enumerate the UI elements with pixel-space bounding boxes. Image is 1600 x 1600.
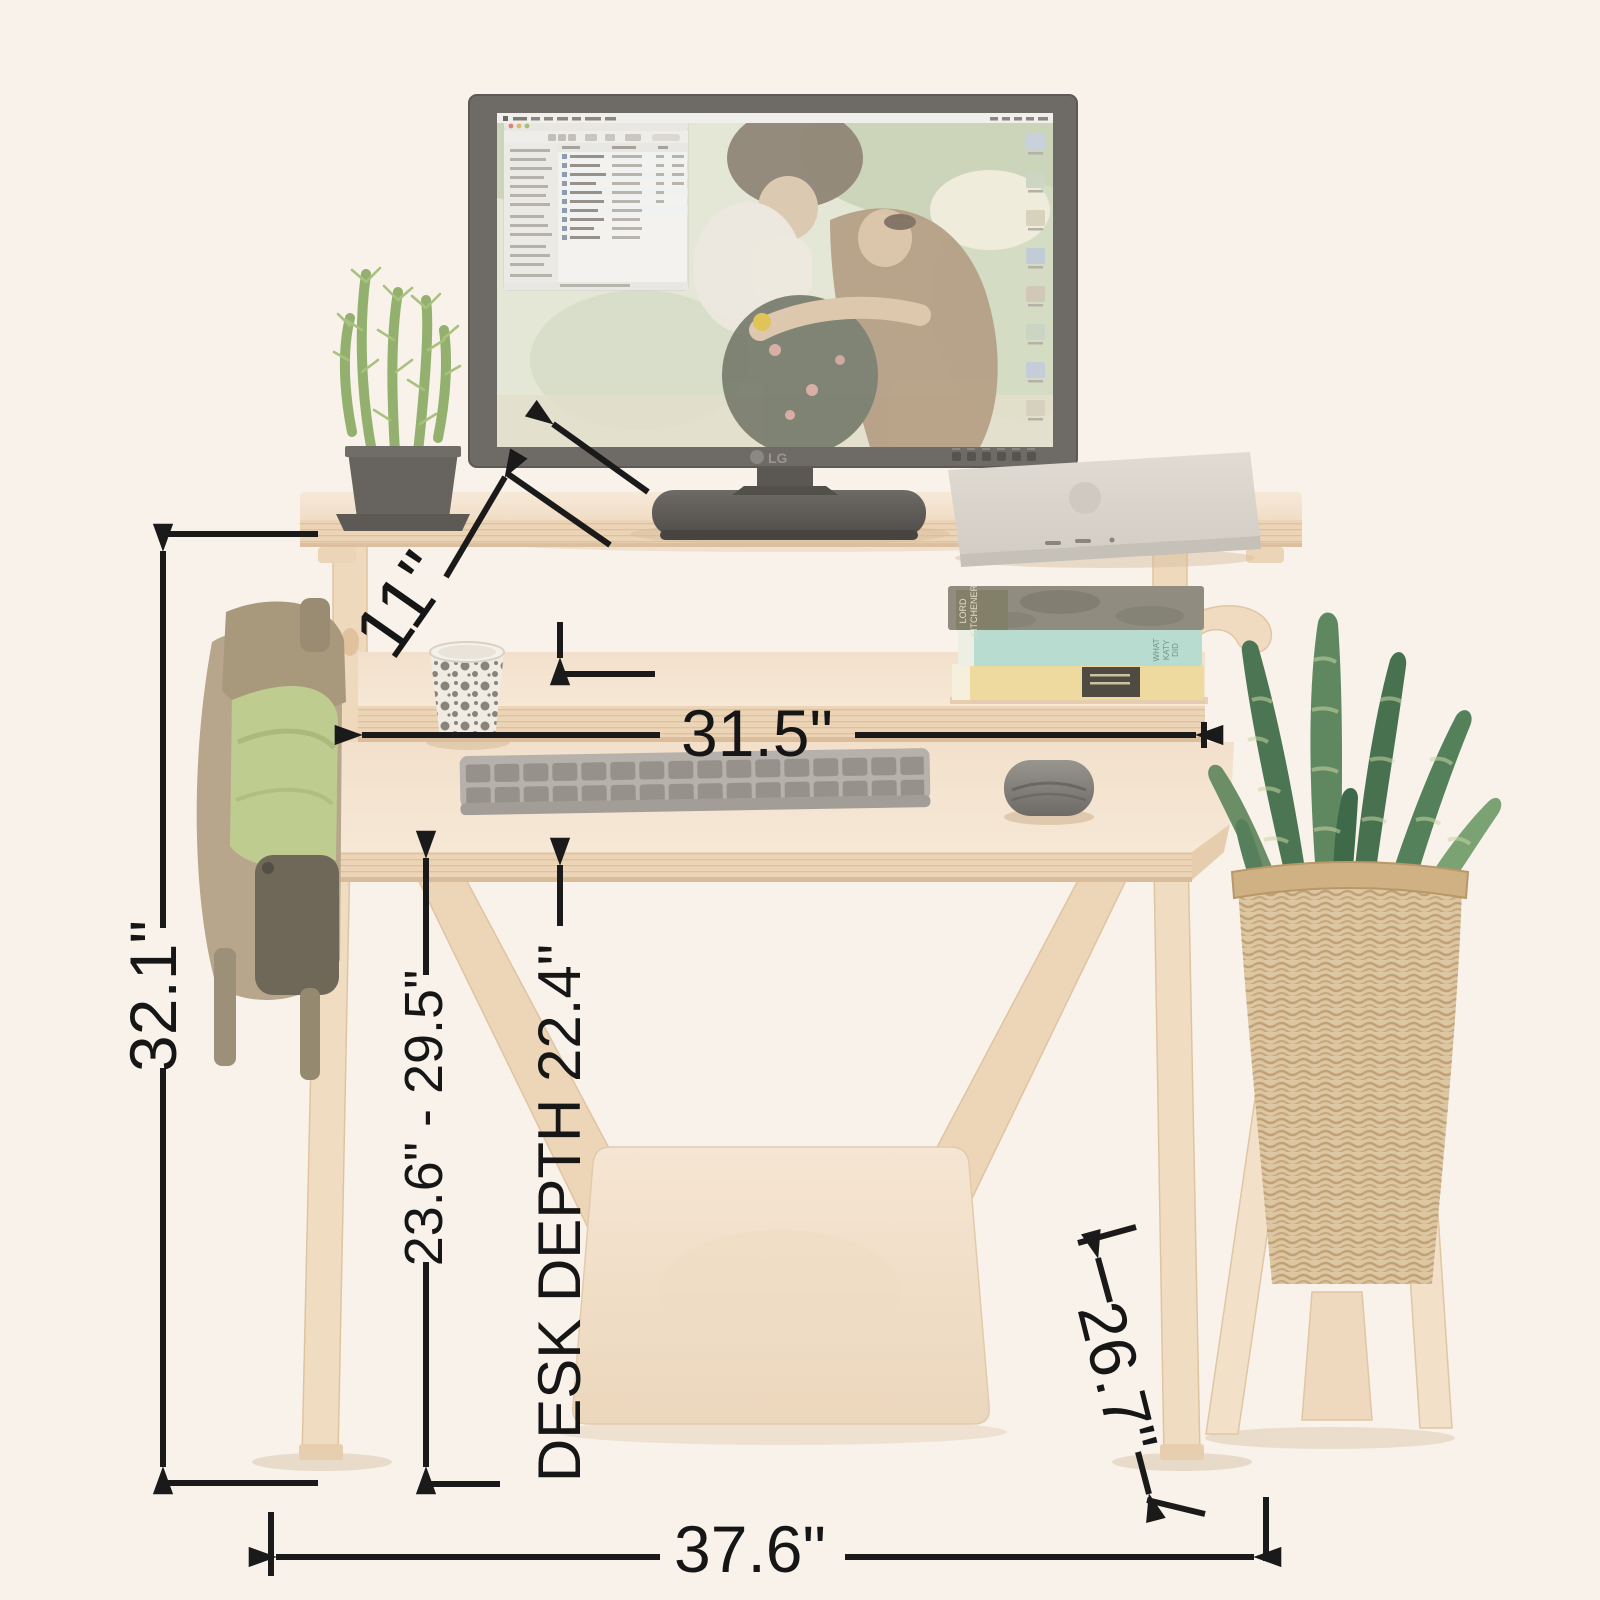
traffic-light-min	[517, 124, 522, 129]
dim-label-desk-depth: DESK DEPTH 22.4"	[530, 944, 590, 1482]
book-dark	[948, 586, 1204, 630]
monitor-base	[652, 490, 926, 536]
desk-footrest	[573, 1147, 989, 1424]
cactus-pot	[336, 446, 470, 531]
finder-window	[504, 120, 688, 290]
lg-logo-icon	[750, 450, 764, 464]
traffic-light-zoom	[525, 124, 530, 129]
laptop	[948, 452, 1261, 568]
monitor-brand-label: LG	[768, 450, 787, 466]
book-middle-title: WHAT KATY DID	[1152, 632, 1181, 668]
scene	[0, 0, 1600, 1600]
monitor-screen-content	[440, 78, 1110, 455]
dim-label-overall-width: 37.6"	[674, 1516, 826, 1582]
traffic-light-close	[509, 124, 514, 129]
dim-label-upper-shelf-width: 31.5"	[681, 700, 833, 766]
mouse	[1004, 760, 1094, 825]
plant-basket	[1232, 862, 1468, 1284]
menu-bar	[497, 113, 1053, 123]
dim-label-overall-height: 32.1"	[120, 920, 186, 1072]
book-top-title: LORD KITCHENER	[958, 585, 981, 637]
book-yellow	[952, 664, 1204, 700]
dim-label-desk-height-range: 23.6" - 29.5"	[397, 970, 451, 1267]
product-photo: 11" 31.5" 32.1" 23.6" - 29.5" DESK DEPTH…	[0, 0, 1600, 1600]
laptop-logo-ghost	[1069, 482, 1101, 514]
